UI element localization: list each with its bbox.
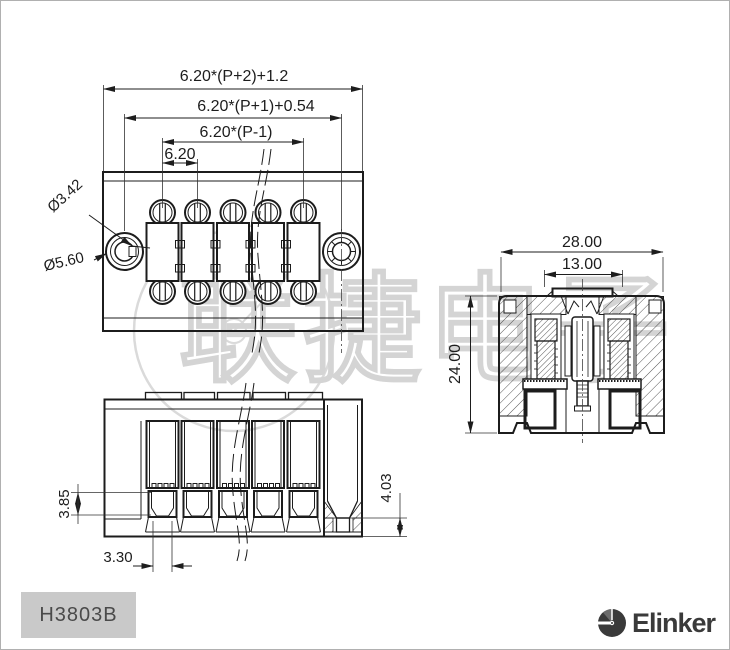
dim-body-width: 28.00 bbox=[562, 234, 602, 251]
screw-right bbox=[604, 314, 634, 379]
dim-pitch: 6.20 bbox=[164, 146, 195, 163]
dim-ear-diameter: Ø5.60 bbox=[42, 249, 86, 275]
left-ear bbox=[106, 233, 143, 270]
part-number-box: H3803B bbox=[21, 592, 136, 638]
brand-name: Elinker bbox=[632, 608, 715, 639]
dim-foot-height: 4.03 bbox=[378, 473, 395, 502]
break-line-front-view bbox=[232, 383, 254, 561]
dim-mounting-span: 6.20*(P+1)+0.54 bbox=[197, 98, 315, 115]
wire-slots bbox=[146, 421, 321, 532]
dim-body-height: 24.00 bbox=[447, 344, 464, 384]
dim-pole-span: 6.20*(P-1) bbox=[200, 124, 273, 141]
brand-logo: Elinker bbox=[596, 607, 715, 639]
cad-drawing: 联捷电子 bbox=[1, 1, 730, 650]
screw-left bbox=[531, 314, 561, 379]
front-end-cap bbox=[324, 400, 362, 536]
drawing-sheet: 联捷电子 bbox=[0, 0, 730, 650]
top-view: 6.20*(P+2)+1.2 6.20*(P+1)+0.54 6.20*(P-1… bbox=[42, 68, 363, 353]
dim-opening-height: 3.85 bbox=[56, 489, 73, 518]
front-view: 3.85 3.30 4.03 bbox=[56, 383, 407, 572]
elinker-logo-icon bbox=[596, 607, 628, 639]
part-number: H3803B bbox=[39, 604, 117, 627]
pole-blocks bbox=[147, 200, 320, 304]
dim-tab-width: 13.00 bbox=[562, 256, 602, 273]
dim-opening-width: 3.30 bbox=[103, 549, 132, 566]
dim-hole-diameter: Ø3.42 bbox=[44, 176, 86, 216]
dim-overall-length: 6.20*(P+2)+1.2 bbox=[180, 68, 289, 85]
